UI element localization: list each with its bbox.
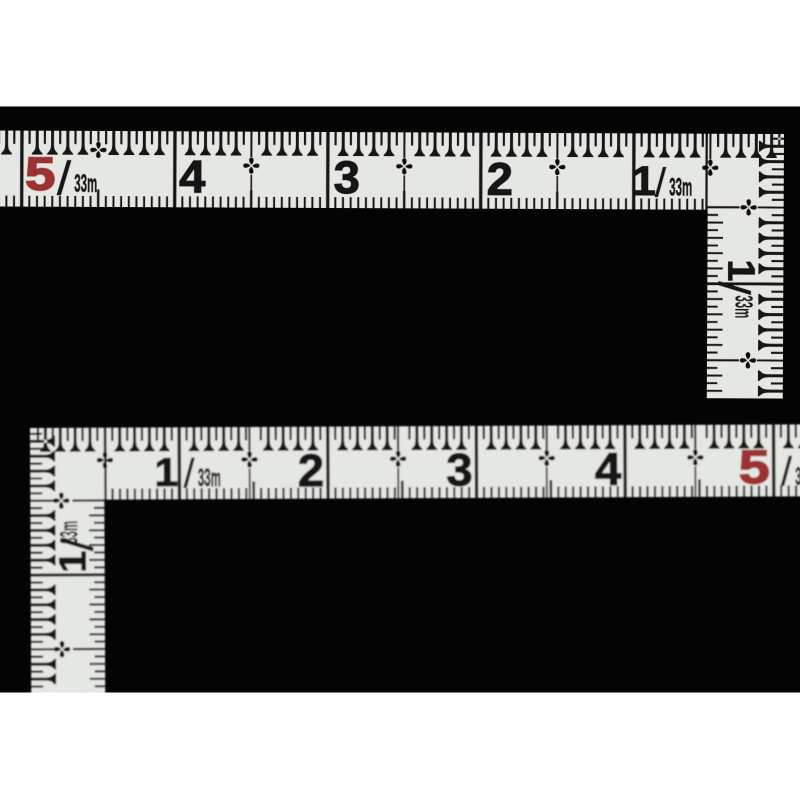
svg-text:/: /	[655, 159, 667, 205]
svg-text:4: 4	[179, 151, 206, 202]
svg-text:/: /	[183, 450, 195, 496]
svg-text:33m: 33m	[74, 170, 97, 198]
svg-text:3: 3	[795, 463, 800, 491]
svg-text:4: 4	[595, 444, 622, 495]
svg-text:3: 3	[446, 444, 473, 495]
svg-text:/: /	[710, 281, 760, 295]
svg-text:33m: 33m	[198, 464, 221, 492]
svg-text:1: 1	[632, 158, 656, 204]
svg-text:33m: 33m	[669, 174, 692, 202]
svg-text:1: 1	[719, 259, 761, 281]
svg-text:2: 2	[487, 154, 514, 205]
svg-text:/: /	[57, 153, 72, 205]
svg-text:33m: 33m	[55, 521, 83, 544]
svg-text:5: 5	[739, 440, 770, 493]
svg-text:2: 2	[298, 445, 325, 496]
svg-text:1: 1	[155, 450, 179, 495]
svg-text:1: 1	[53, 551, 95, 573]
svg-text:/: /	[781, 448, 793, 494]
svg-text:33m: 33m	[729, 295, 757, 318]
svg-text:3: 3	[334, 152, 361, 203]
svg-text:5: 5	[25, 148, 55, 200]
